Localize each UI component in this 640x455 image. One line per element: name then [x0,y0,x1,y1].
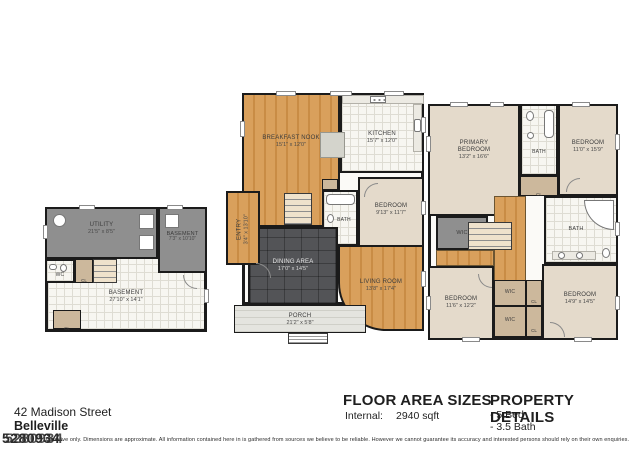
basement-upper-dims: 7'3" x 10'10" [160,237,205,243]
kitchen-sink-icon [414,119,421,132]
floorplan-sheet: UTILITY 21'5" x 8'5" BASEMENT 7'3" x 10'… [0,0,640,455]
basement-wc: WC [45,259,75,283]
disclaimer-text: Indicative only. Dimensions are approxim… [44,437,636,443]
toilet-icon [526,111,534,121]
basement-floor-plan: UTILITY 21'5" x 8'5" BASEMENT 7'3" x 10'… [45,207,207,332]
bedroom-bottom-left: BEDROOM 11'6" x 12'2" [428,266,494,340]
first-floor-stairs [284,193,312,225]
address-line-1: 42 Madison Street [14,405,111,419]
primary-bath: BATH [544,196,618,264]
window [204,289,209,303]
basement-upper-room: BASEMENT 7'3" x 10'10" [158,207,207,273]
bedroom-top-right: BEDROOM 11'0" x 15'9" [558,104,618,196]
appliance-icon [165,214,179,228]
second-floor-plan: PRIMARY BEDROOM 13'2" x 16'6" BATH BEDRO… [428,104,618,340]
entry: ENTRY 3'4" x 13'10" [226,191,260,265]
sink-icon [576,252,583,259]
wc-label: WC [47,273,73,279]
basement-upper-label: BASEMENT [160,231,205,237]
kitchen: KITCHEN 15'7" x 12'0" [340,93,424,173]
window [330,91,352,96]
upper-hall-west [436,250,494,266]
closet-middle-1: CL [526,280,542,306]
window [615,222,620,236]
window [490,102,504,107]
window [421,271,426,287]
floor-area-title: FLOOR AREA SIZES [343,392,492,409]
toilet-icon [60,264,67,272]
wic-middle-1: WIC [494,280,526,306]
basement-closet-2: CL [53,310,81,329]
dryer-icon [139,235,154,250]
floor-area-value: 2940 sqft [396,410,439,422]
floor-area-label: Internal: [345,410,383,422]
window [240,121,245,137]
sink-icon [527,132,534,139]
window [426,296,431,310]
stove-icon [370,96,386,103]
hall-closet: CL [322,179,338,190]
bathtub-icon [326,194,355,205]
window [79,205,95,210]
window [572,102,590,107]
window [615,296,620,310]
closet-middle-2: CL [526,306,542,337]
bathtub-icon [544,110,554,138]
sink-icon [49,264,57,270]
corner-tub-icon [584,200,614,230]
window [421,117,426,133]
basement-closet-1: CL [75,259,93,283]
washer-icon [139,214,154,229]
toilet-icon [327,214,334,223]
upper-closet-top: CL [520,176,558,196]
entry-label-block: ENTRY 3'4" x 13'10" [237,194,250,264]
window [426,136,431,152]
wic-middle-2: WIC [494,306,526,337]
door-arc [364,183,378,197]
toilet-icon [602,248,610,258]
window [421,201,426,215]
window [462,337,480,342]
window [276,91,296,96]
property-details-beds: - 5 Bed [490,409,524,421]
first-floor-plan: BREAKFAST NOOK 15'1" x 12'0" KITCHEN 15'… [226,93,424,345]
door-arc [550,322,565,337]
door-arc [478,274,492,288]
window [615,134,620,150]
property-details-baths: - 3.5 Bath [490,421,536,433]
window [43,225,48,239]
porch-steps [288,333,328,344]
window [450,102,468,107]
utility-room: UTILITY 21'5" x 8'5" [45,207,158,259]
first-floor-bedroom: BEDROOM 9'13" x 11'7" [358,177,424,247]
closet-label: CL [81,278,87,283]
second-floor-stairs [468,222,512,250]
window [574,337,592,342]
kitchen-island [320,132,345,158]
bedroom-bottom-right: BEDROOM 14'9" x 14'5" [542,264,618,340]
window [167,205,183,210]
water-heater-icon [53,214,66,227]
door-arc [566,178,580,192]
sink-icon [558,252,565,259]
upper-hall-bath: BATH [520,104,558,176]
window [384,91,404,96]
basement-stairs [93,259,117,283]
porch: PORCH 21'2" x 5'8" [234,305,366,333]
